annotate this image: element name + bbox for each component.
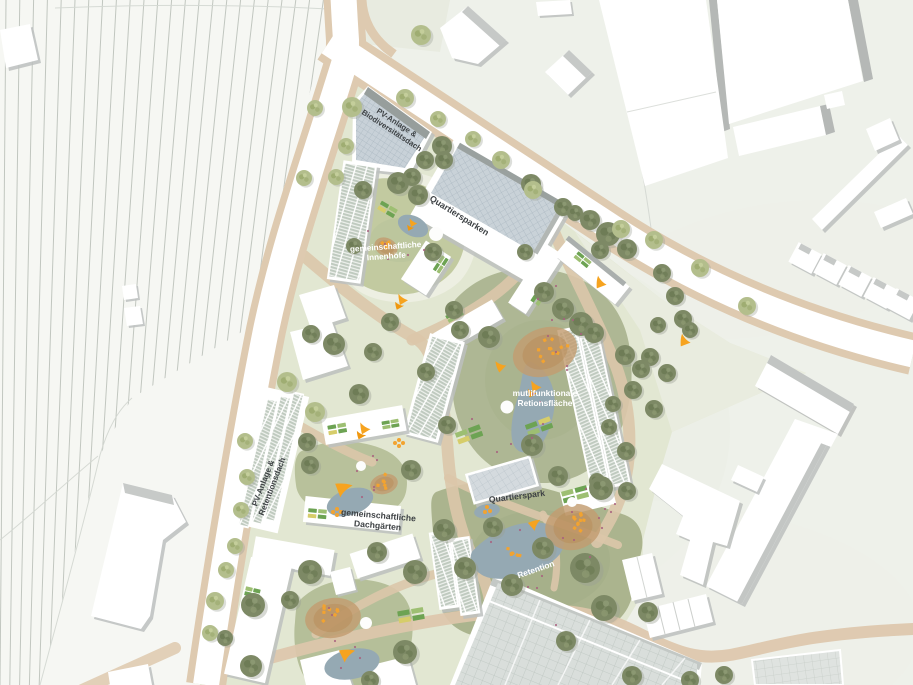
- svg-text:Retionsfläche: Retionsfläche: [518, 398, 573, 408]
- svg-text:mutlifunktionale: mutlifunktionale: [513, 388, 578, 398]
